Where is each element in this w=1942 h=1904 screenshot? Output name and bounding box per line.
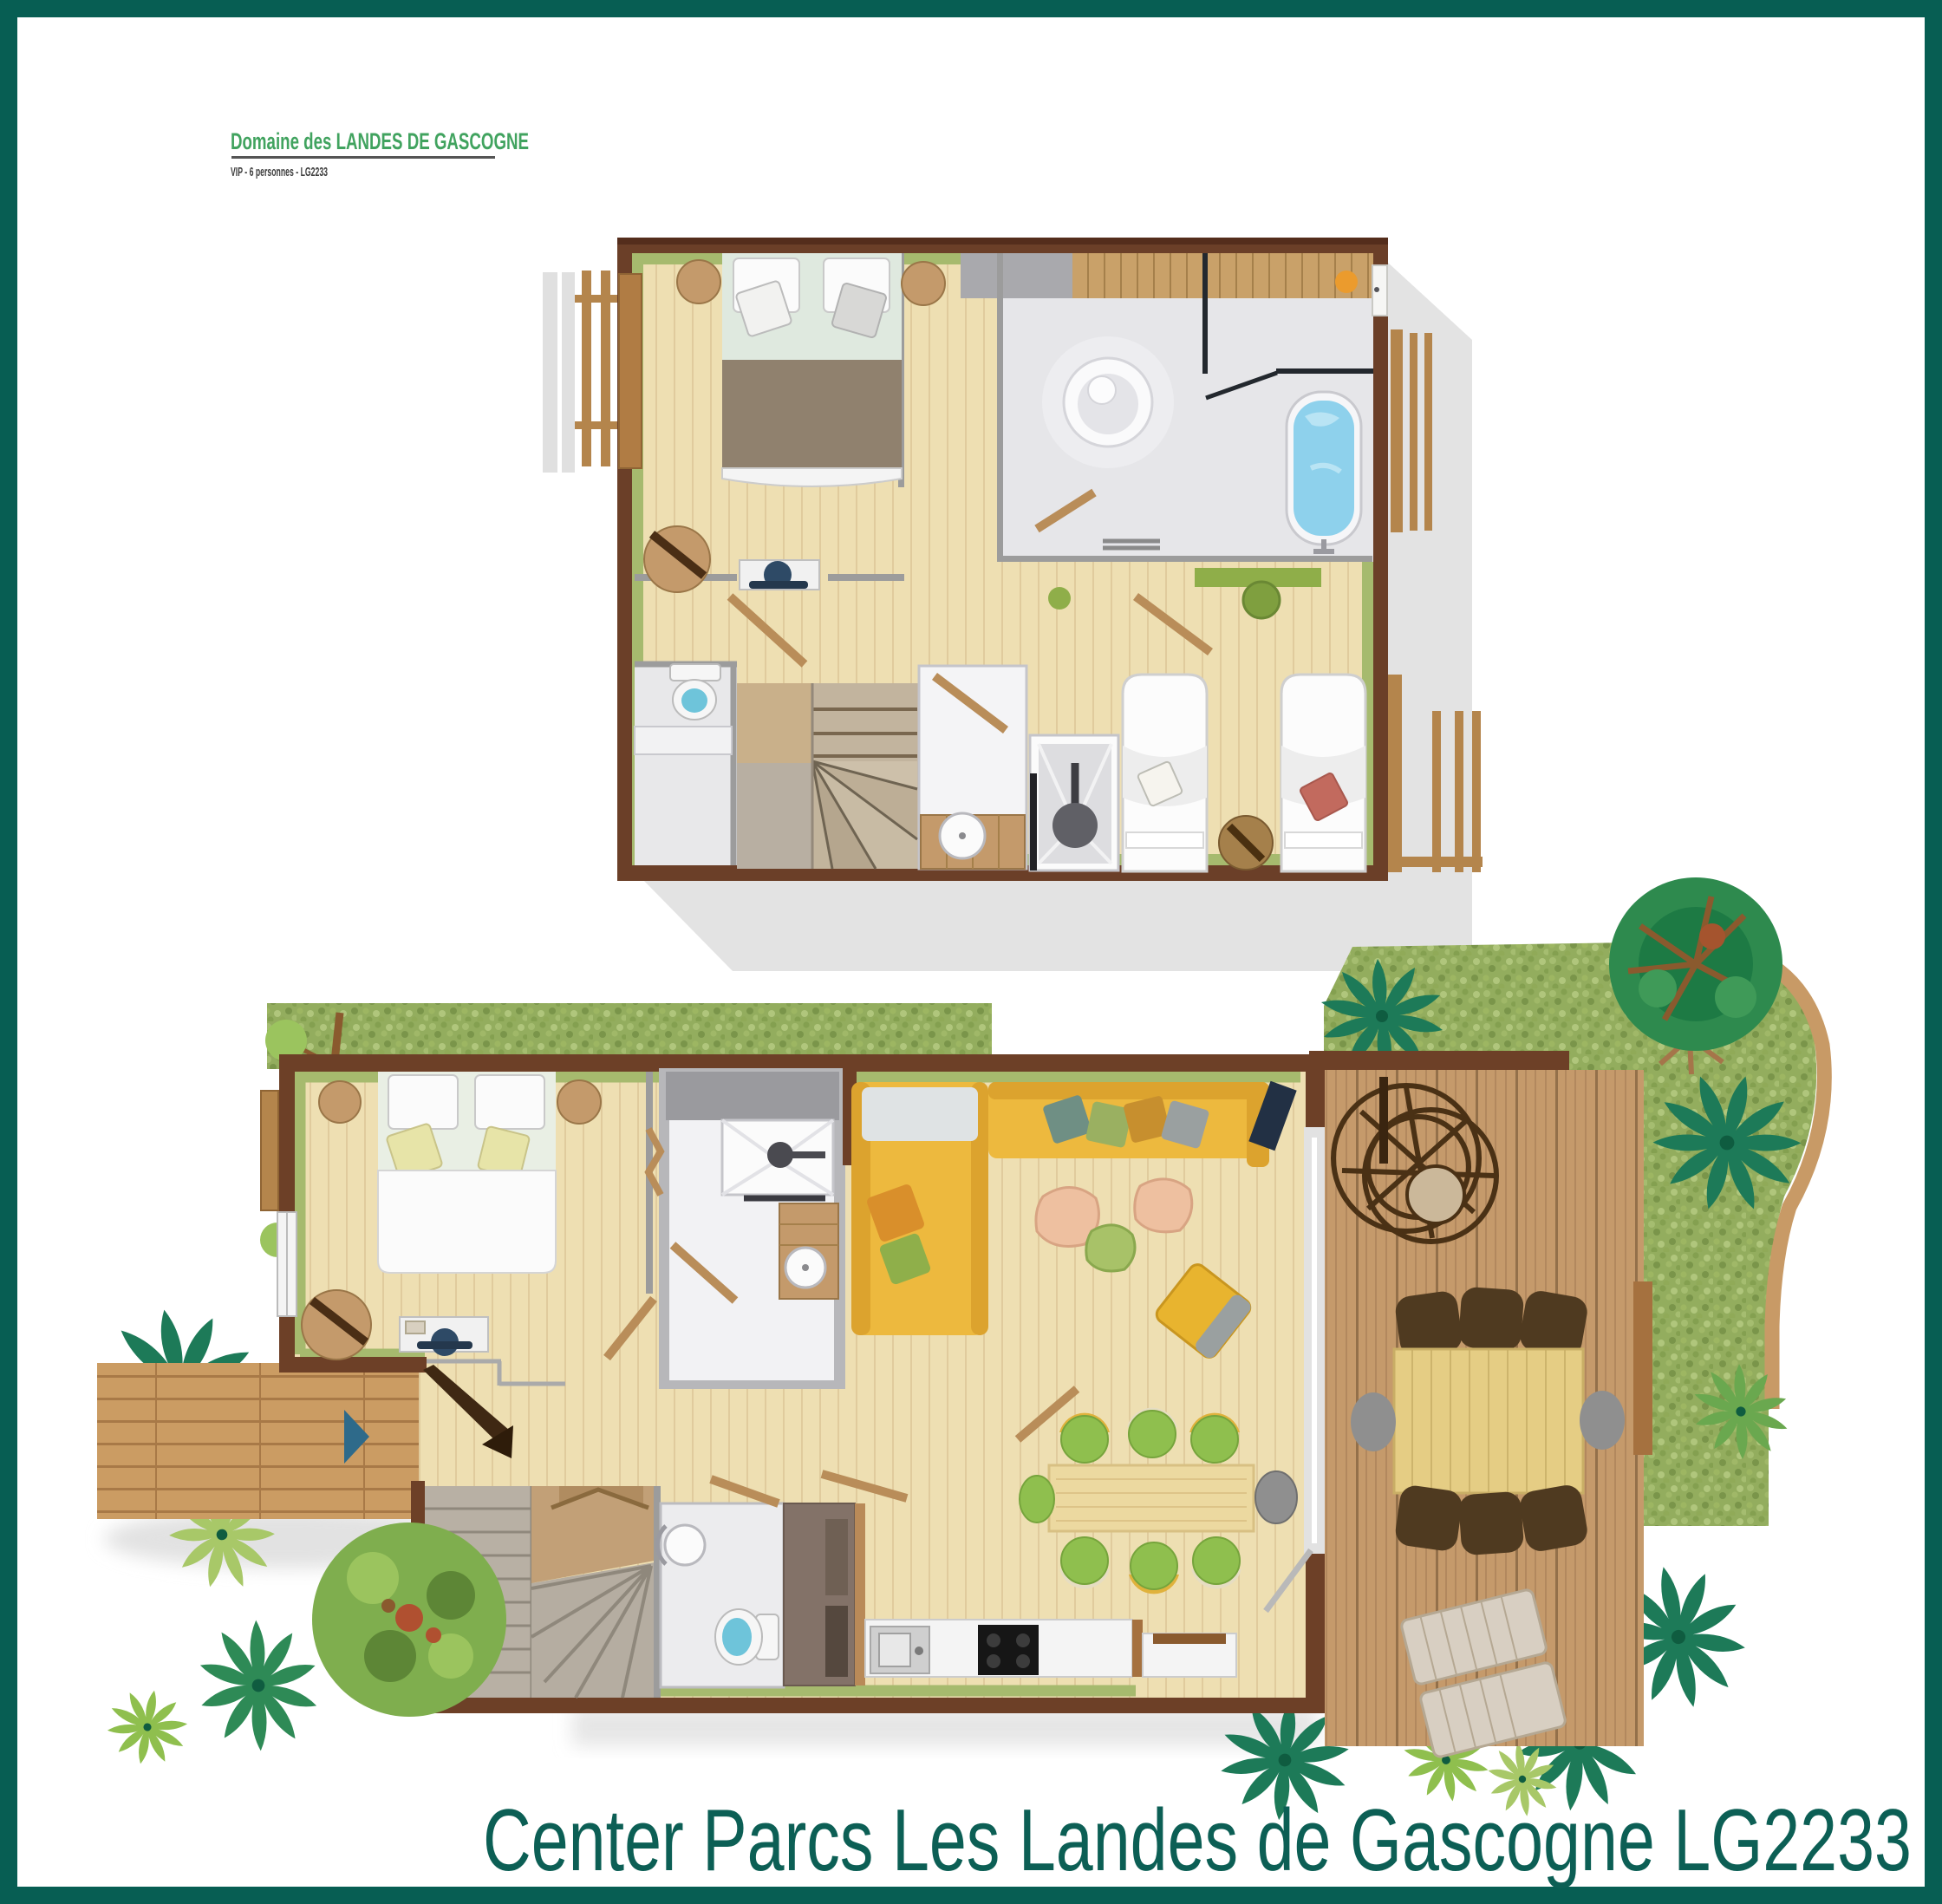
svg-text:VIP - 6 personnes - LG2233: VIP - 6 personnes - LG2233 — [231, 166, 328, 179]
svg-text:Domaine des LANDES DE GASCOGNE: Domaine des LANDES DE GASCOGNE — [231, 128, 529, 154]
svg-text:Center Parcs Les Landes de Gas: Center Parcs Les Landes de Gascogne LG22… — [483, 1792, 1912, 1889]
